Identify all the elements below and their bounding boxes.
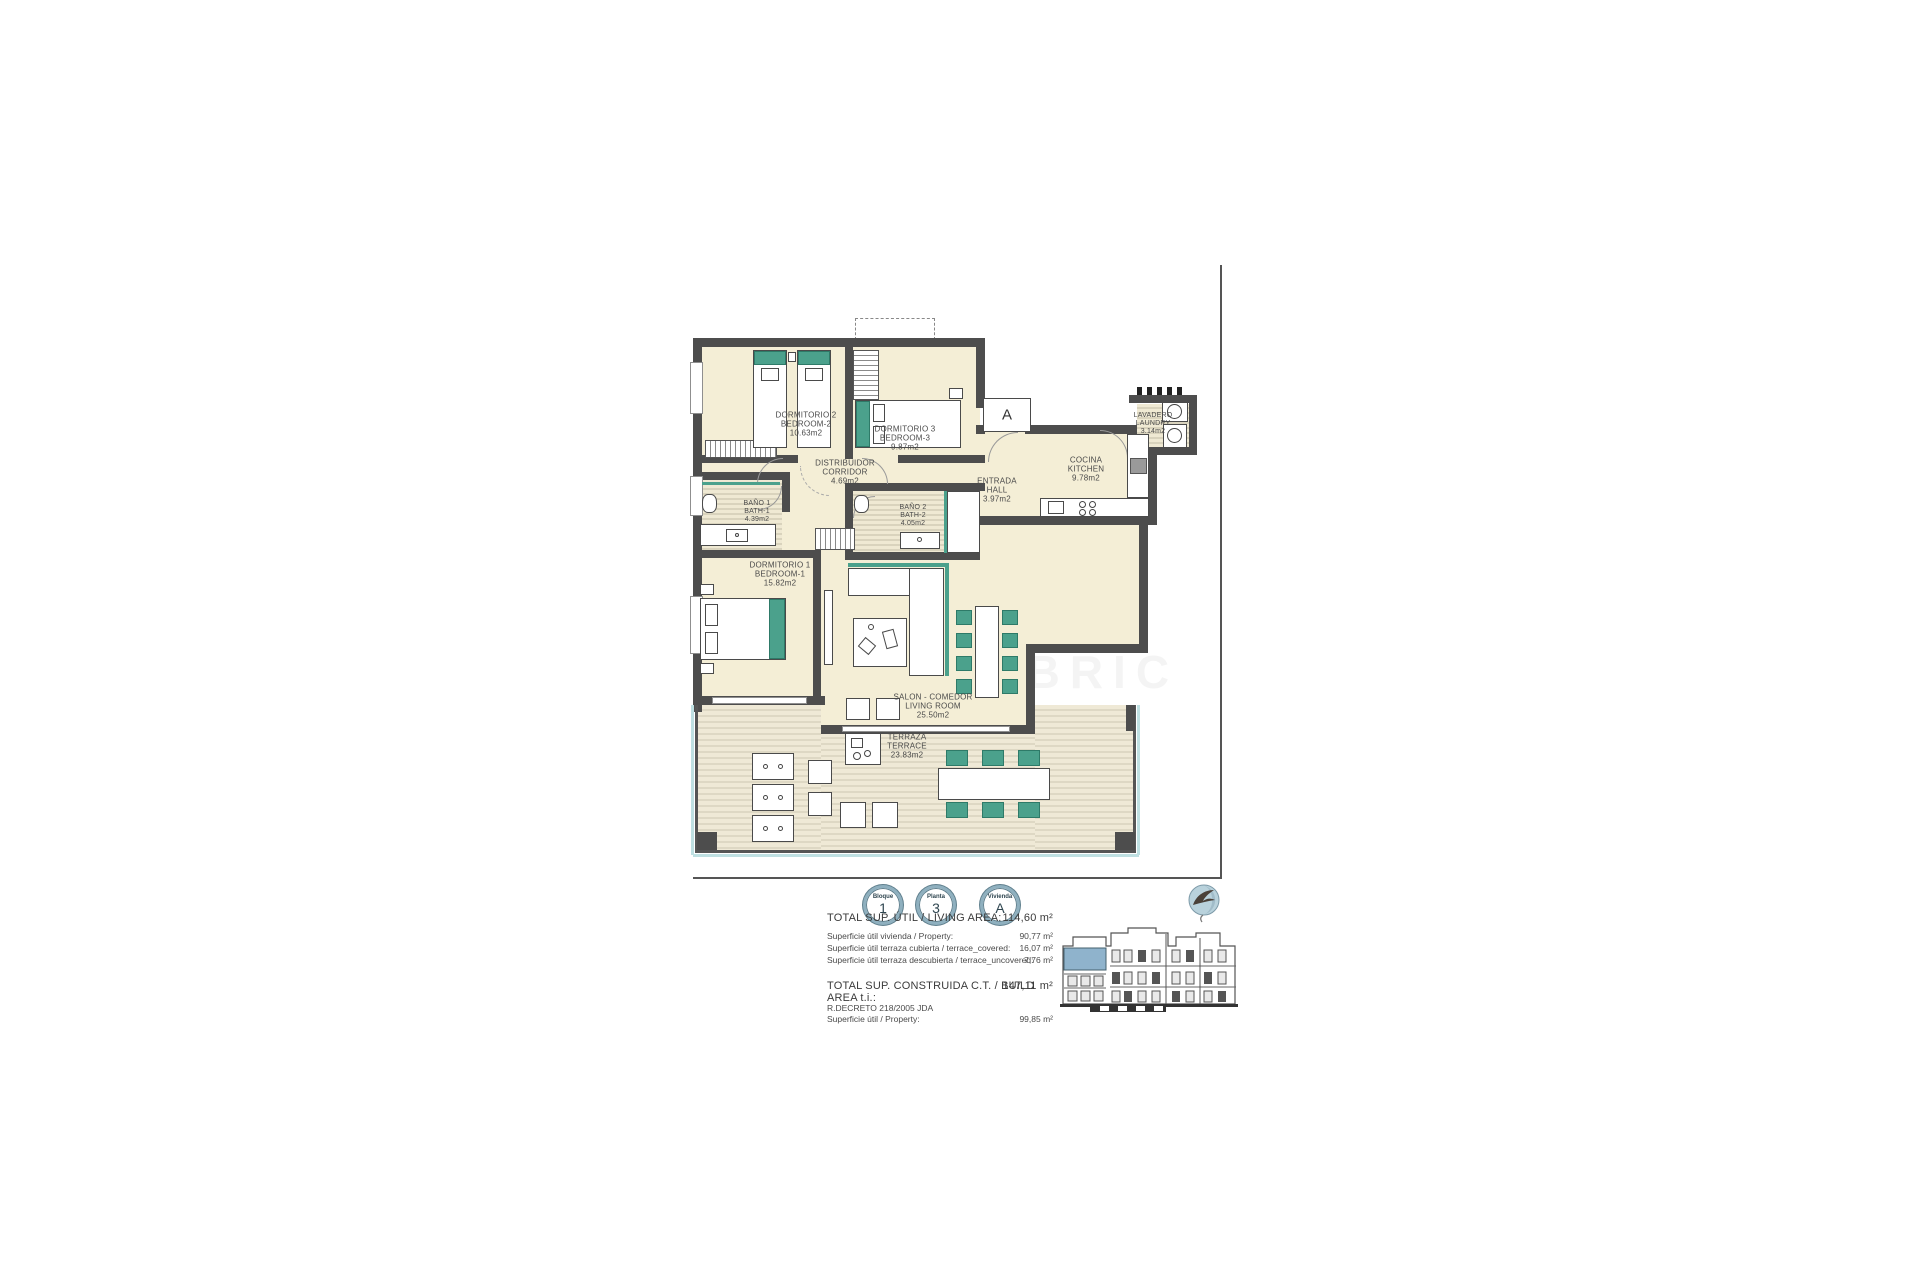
lounger xyxy=(752,815,794,842)
building-elevation xyxy=(1060,916,1238,1008)
summary-label: Superficie útil vivienda / Property: xyxy=(827,931,953,941)
hob-burner xyxy=(1079,501,1086,508)
nightstand xyxy=(700,663,714,674)
terrace-pillar xyxy=(697,832,717,850)
wall xyxy=(980,516,1157,525)
wall xyxy=(1189,395,1197,455)
summary-label: Superficie útil terraza cubierta / terra… xyxy=(827,943,1010,953)
terrace-stool xyxy=(840,802,866,828)
total-living-label: TOTAL SUP. ÚTIL / LIVING AREA: xyxy=(827,912,1002,924)
scale-bar xyxy=(1090,1005,1166,1012)
wall xyxy=(845,552,980,560)
summary-value: 7,76 m² xyxy=(1024,955,1053,965)
lounger-dot xyxy=(763,764,768,769)
terrace-door-glass xyxy=(842,726,1010,732)
pillow xyxy=(761,368,779,381)
wall xyxy=(845,347,853,459)
hob-burner xyxy=(1089,509,1096,516)
hob-burner xyxy=(1079,509,1086,516)
summary-row: Superficie útil vivienda / Property: 90,… xyxy=(827,931,1053,941)
terrace-stool xyxy=(872,802,898,828)
summary-label: Superficie útil terraza descubierta / te… xyxy=(827,955,1033,965)
terrace-glass-rail xyxy=(691,705,694,855)
terrace-dining-table xyxy=(938,768,1050,800)
dining-chair xyxy=(1002,679,1018,694)
dashed-canopy xyxy=(855,318,935,340)
wall xyxy=(898,455,985,463)
terrace-door-glass xyxy=(712,697,807,704)
room-name-es: DORMITORIO 2 xyxy=(776,411,837,420)
room-label-terrace: TERRAZA TERRACE 23.83m2 xyxy=(887,733,927,760)
room-area: 10.63m2 xyxy=(790,429,823,438)
room-name-es: SALON - COMEDOR xyxy=(893,693,972,702)
room-name-en: CORRIDOR xyxy=(822,468,867,477)
wall xyxy=(1148,447,1157,525)
dining-chair xyxy=(1002,633,1018,648)
terrace-chair xyxy=(946,802,968,818)
room-area: 25.50m2 xyxy=(917,711,950,720)
room-label-bedroom1: DORMITORIO 1 BEDROOM-1 15.82m2 xyxy=(750,561,811,588)
wall xyxy=(1026,644,1035,734)
pillow xyxy=(805,368,823,381)
wall xyxy=(813,550,821,705)
summary-value: 16,07 m² xyxy=(1019,943,1053,953)
decree-label: R.DECRETO 218/2005 JDA xyxy=(827,1003,933,1013)
elevation-drawing xyxy=(1060,916,1238,1008)
room-name-es: ENTRADA xyxy=(977,477,1017,486)
room-name-en: LAUNDRY xyxy=(1136,420,1171,427)
fridge xyxy=(1130,458,1147,474)
room-label-bath1: BAÑO 1 BATH-1 4.39m2 xyxy=(744,500,771,524)
terrace-chair xyxy=(982,750,1004,766)
room-label-kitchen: COCINA KITCHEN 9.78m2 xyxy=(1068,456,1105,483)
sheet-border-bottom xyxy=(693,877,1222,879)
summary-row: Superficie útil terraza cubierta / terra… xyxy=(827,943,1053,953)
room-label-bath2: BAÑO 2 BATH-2 4.05m2 xyxy=(900,504,927,528)
wall xyxy=(1157,447,1197,455)
room-name-en: HALL xyxy=(987,486,1008,495)
dining-chair xyxy=(956,610,972,625)
room-name-es: LAVADERO xyxy=(1134,412,1173,419)
wall xyxy=(693,338,985,347)
decor-item xyxy=(851,738,863,748)
planter xyxy=(808,792,832,816)
bed-headboard xyxy=(856,401,870,447)
lounger-dot xyxy=(763,795,768,800)
toilet xyxy=(702,494,717,513)
company-logo xyxy=(1184,882,1224,926)
hall-closet xyxy=(815,528,855,550)
lounger xyxy=(752,753,794,780)
room-area: 4.39m2 xyxy=(745,516,770,523)
decree-row-value: 99,85 m² xyxy=(1019,1014,1053,1024)
sofa-back xyxy=(848,563,948,567)
lounger-dot xyxy=(763,826,768,831)
room-name-en: TERRACE xyxy=(887,742,927,751)
terrace-pillar xyxy=(1115,832,1135,850)
room-area: 15.82m2 xyxy=(764,579,797,588)
decree-label-row: R.DECRETO 218/2005 JDA xyxy=(827,1003,1053,1013)
decor-dot xyxy=(864,750,871,757)
room-label-bedroom2: DORMITORIO 2 BEDROOM-2 10.63m2 xyxy=(776,411,837,438)
terrace-edge xyxy=(695,705,698,853)
lounger-dot xyxy=(778,826,783,831)
total-built-value: 147,11 m² xyxy=(1002,980,1053,992)
kitchen-sink xyxy=(1048,501,1064,514)
armchair xyxy=(846,698,870,720)
closet xyxy=(853,350,879,400)
sheet-border-vertical xyxy=(1220,265,1222,878)
bird-logo-icon xyxy=(1184,882,1224,926)
nightstand xyxy=(700,584,714,595)
room-name-es: COCINA xyxy=(1070,456,1102,465)
room-name-en: BATH-2 xyxy=(900,512,926,519)
shower-tray xyxy=(947,491,980,553)
shower-screen xyxy=(702,482,780,485)
room-name-es: TERRAZA xyxy=(888,733,927,742)
room-name-en: BEDROOM-2 xyxy=(781,420,831,429)
section-marker: A xyxy=(1002,407,1012,424)
bed-headboard xyxy=(754,351,786,365)
wall xyxy=(782,472,790,512)
wall xyxy=(1025,425,1137,434)
bed-footboard xyxy=(769,599,785,659)
decree-row-label: Superficie útil / Property: xyxy=(827,1014,920,1024)
room-label-bedroom3: DORMITORIO 3 BEDROOM-3 9.87m2 xyxy=(875,425,936,452)
room-area: 3.97m2 xyxy=(983,495,1011,504)
lounger-dot xyxy=(778,795,783,800)
sofa-back xyxy=(945,563,949,676)
room-label-laundry: LAVADERO LAUNDRY 3.14m2 xyxy=(1134,412,1173,436)
planter xyxy=(808,760,832,784)
sink-drain xyxy=(735,533,739,537)
decor-dot xyxy=(853,752,861,760)
sink-drain xyxy=(917,537,922,542)
room-name-es: DISTRIBUIDOR xyxy=(815,459,875,468)
terrace-glass-rail xyxy=(693,854,1139,857)
room-label-corridor: DISTRIBUIDOR CORRIDOR 4.69m2 xyxy=(815,459,875,486)
room-area: 4.05m2 xyxy=(901,520,926,527)
room-name-en: KITCHEN xyxy=(1068,465,1105,474)
room-name-en: LIVING ROOM xyxy=(905,702,961,711)
terrace-pillar xyxy=(1126,705,1135,731)
room-area: 3.14m2 xyxy=(1141,428,1166,435)
bed-headboard xyxy=(798,351,830,365)
room-name-en: BEDROOM-1 xyxy=(755,570,805,579)
room-area: 9.78m2 xyxy=(1072,474,1100,483)
total-built-row: TOTAL SUP. CONSTRUIDA C.T. / BUILD AREA … xyxy=(827,980,1053,1004)
sofa xyxy=(909,568,944,676)
terrace-chair xyxy=(982,802,1004,818)
room-area: 9.87m2 xyxy=(891,443,919,452)
dining-table xyxy=(975,606,999,698)
nightstand xyxy=(949,388,963,399)
wall xyxy=(693,550,821,558)
total-living-row: TOTAL SUP. ÚTIL / LIVING AREA: 114,60 m² xyxy=(827,912,1053,924)
pillow xyxy=(705,632,718,654)
summary-row: Superficie útil terraza descubierta / te… xyxy=(827,955,1053,965)
decor-dot xyxy=(868,624,874,630)
room-area: 4.69m2 xyxy=(831,477,859,486)
room-label-hall: ENTRADA HALL 3.97m2 xyxy=(977,477,1017,504)
dining-chair xyxy=(1002,610,1018,625)
lounger xyxy=(752,784,794,811)
pillow xyxy=(705,604,718,626)
room-label-living: SALON - COMEDOR LIVING ROOM 25.50m2 xyxy=(893,693,972,720)
room-name-es: BAÑO 1 xyxy=(744,500,771,507)
lounger-dot xyxy=(778,764,783,769)
terrace-chair xyxy=(946,750,968,766)
pillow xyxy=(873,404,885,422)
terrace-chair xyxy=(1018,750,1040,766)
nightstand xyxy=(788,352,796,362)
wall xyxy=(1026,644,1148,653)
room-area: 23.83m2 xyxy=(891,751,924,760)
tv-unit xyxy=(824,590,833,665)
terrace-deck xyxy=(1035,705,1135,852)
room-name-en: BATH-1 xyxy=(744,508,770,515)
plan-sheet: GOLD BRIC xyxy=(0,0,1920,1280)
wall xyxy=(1139,525,1148,653)
toilet xyxy=(854,495,869,513)
room-name-en: BEDROOM-3 xyxy=(880,434,930,443)
summary-value: 90,77 m² xyxy=(1019,931,1053,941)
terrace-edge xyxy=(697,850,1135,853)
dining-chair xyxy=(956,633,972,648)
laundry-vent-ticks xyxy=(1137,387,1185,395)
terrace-glass-rail xyxy=(1137,705,1140,855)
room-name-es: DORMITORIO 1 xyxy=(750,561,811,570)
decree-value-row: Superficie útil / Property: 99,85 m² xyxy=(827,1014,1053,1024)
room-name-es: DORMITORIO 3 xyxy=(875,425,936,434)
room-name-es: BAÑO 2 xyxy=(900,504,927,511)
terrace-chair xyxy=(1018,802,1040,818)
dining-chair xyxy=(956,656,972,671)
window xyxy=(690,362,703,414)
unit-highlight xyxy=(1064,948,1106,970)
total-living-value: 114,60 m² xyxy=(1002,912,1053,924)
dining-chair xyxy=(1002,656,1018,671)
hob-burner xyxy=(1089,501,1096,508)
